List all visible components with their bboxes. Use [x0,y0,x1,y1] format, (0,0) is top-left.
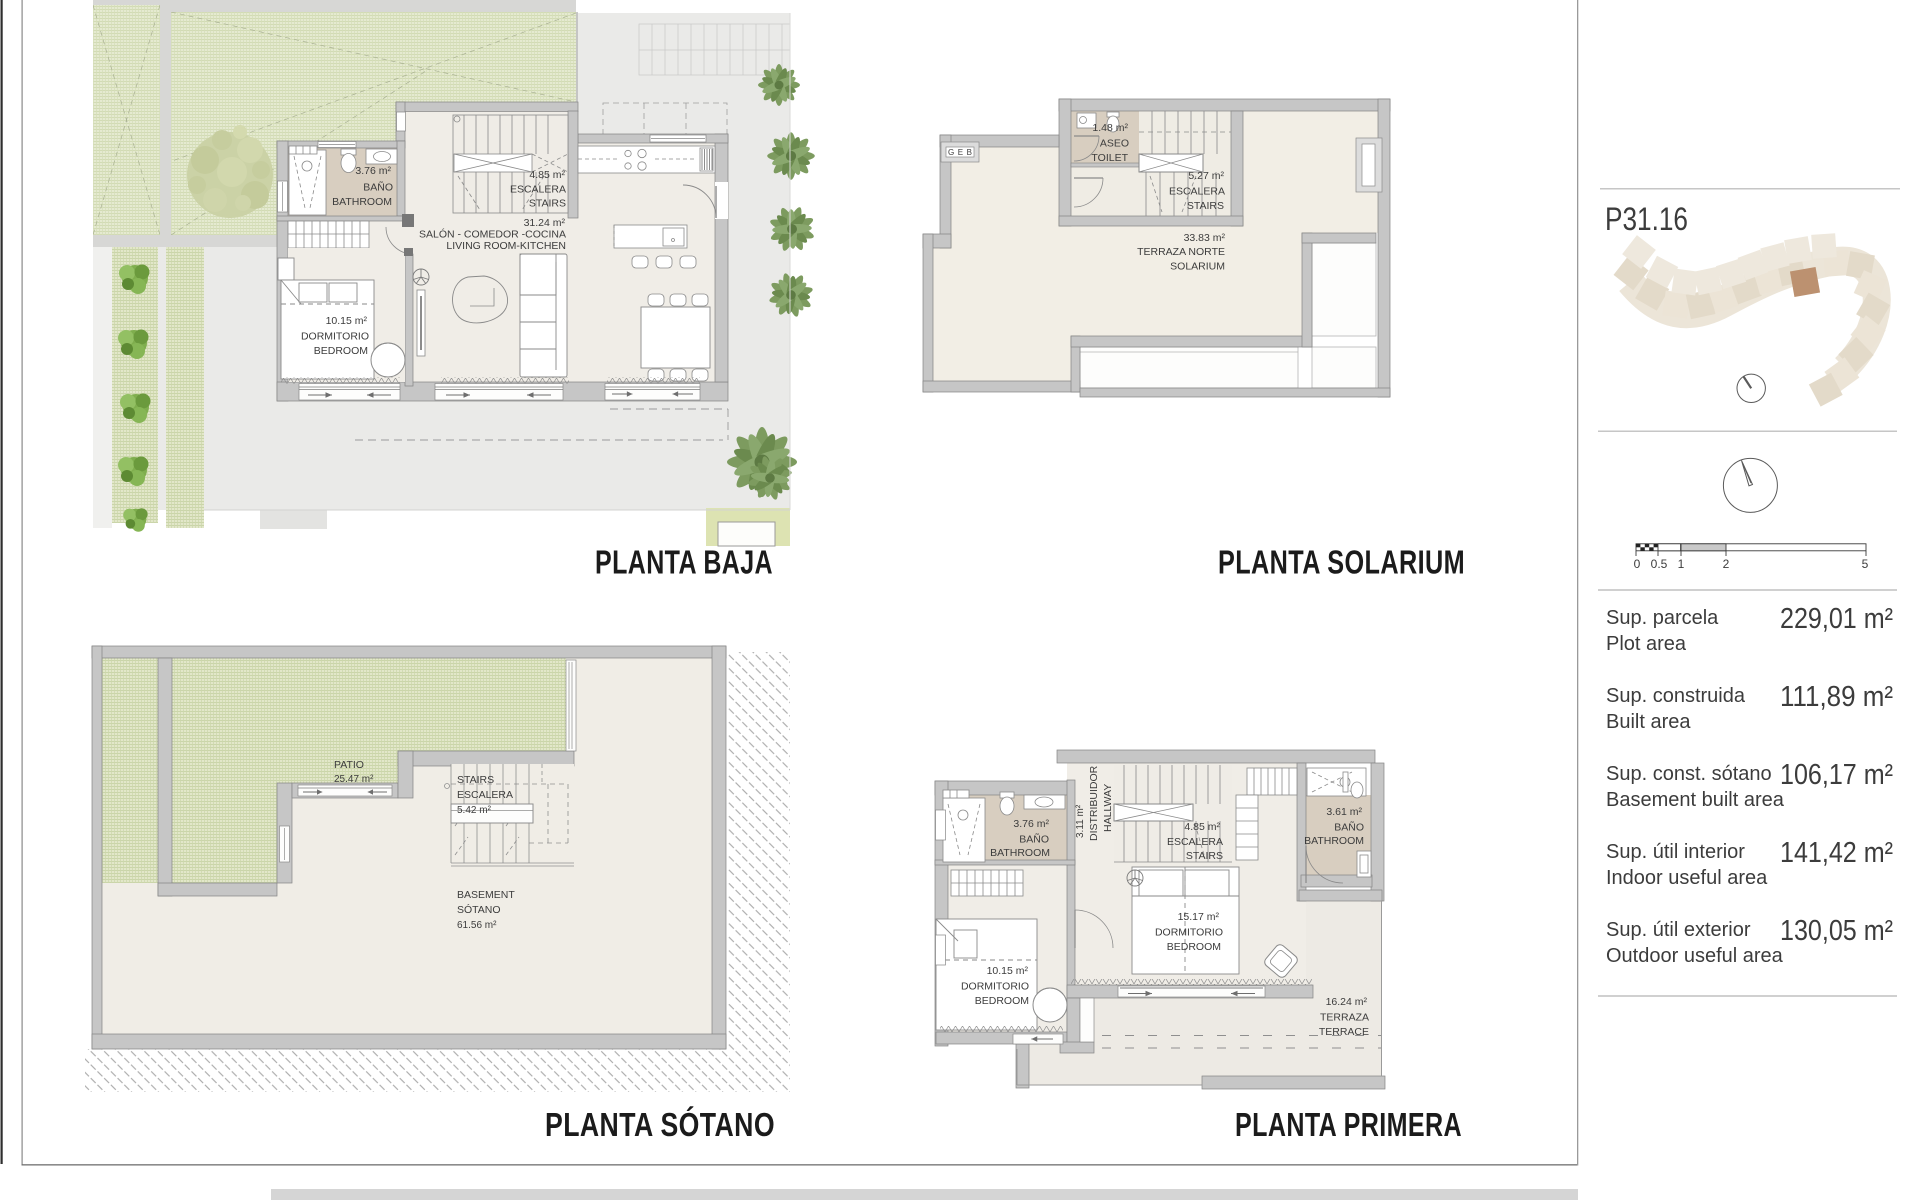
svg-text:DISTRIBUIDOR: DISTRIBUIDOR [1088,765,1100,841]
svg-text:3.76 m²: 3.76 m² [1013,818,1049,830]
svg-text:0.5: 0.5 [1651,557,1668,571]
svg-text:TERRAZA: TERRAZA [1320,1012,1369,1024]
svg-text:4.85 m²: 4.85 m² [1184,821,1220,833]
svg-text:Sup. parcela: Sup. parcela [1606,607,1719,629]
svg-text:Outdoor useful area: Outdoor useful area [1606,945,1784,967]
svg-text:5.27 m²: 5.27 m² [1188,170,1224,182]
svg-text:SÓTANO: SÓTANO [457,903,501,916]
svg-text:Basement built area: Basement built area [1606,789,1785,811]
svg-text:229,01 m²: 229,01 m² [1780,603,1893,635]
svg-text:SALÓN - COMEDOR -COCINA: SALÓN - COMEDOR -COCINA [419,228,566,241]
svg-text:5: 5 [1862,557,1869,571]
svg-text:ASEO: ASEO [1100,138,1129,150]
svg-text:P31.16: P31.16 [1605,201,1688,237]
svg-text:33.83 m²: 33.83 m² [1184,232,1226,244]
svg-text:PLANTA BAJA: PLANTA BAJA [595,544,773,581]
svg-text:PLANTA SOLARIUM: PLANTA SOLARIUM [1218,544,1465,581]
svg-text:DORMITORIO: DORMITORIO [301,331,369,343]
svg-text:DORMITORIO: DORMITORIO [961,981,1029,993]
svg-text:141,42 m²: 141,42 m² [1780,837,1893,869]
svg-text:TOILET: TOILET [1091,152,1128,164]
svg-text:1: 1 [1678,557,1685,571]
svg-text:STAIRS: STAIRS [1187,200,1224,212]
svg-text:SOLARIUM: SOLARIUM [1170,261,1225,273]
svg-text:3.11 m²: 3.11 m² [1075,804,1086,838]
svg-text:15.17 m²: 15.17 m² [1178,911,1220,923]
svg-text:STAIRS: STAIRS [1186,850,1223,862]
svg-text:3.76 m²: 3.76 m² [355,165,391,177]
svg-text:LIVING ROOM-KITCHEN: LIVING ROOM-KITCHEN [446,240,566,252]
svg-text:GEB: GEB [948,148,972,157]
svg-text:4.85 m²: 4.85 m² [529,169,565,181]
svg-text:TERRACE: TERRACE [1319,1026,1369,1038]
svg-text:ESCALERA: ESCALERA [1169,186,1225,198]
svg-text:1.48 m²: 1.48 m² [1092,122,1128,134]
svg-text:HALLWAY: HALLWAY [1102,784,1114,832]
svg-text:0: 0 [1634,557,1641,571]
svg-text:STAIRS: STAIRS [457,774,494,786]
svg-text:31.24 m²: 31.24 m² [524,217,566,229]
svg-text:3.61 m²: 3.61 m² [1326,806,1362,818]
svg-text:2: 2 [1723,557,1730,571]
svg-text:ESCALERA: ESCALERA [510,184,566,196]
svg-text:111,89 m²: 111,89 m² [1780,681,1893,713]
svg-text:10.15 m²: 10.15 m² [326,315,368,327]
svg-text:130,05 m²: 130,05 m² [1780,915,1893,947]
svg-text:BAÑO: BAÑO [1334,821,1364,834]
svg-text:BATHROOM: BATHROOM [332,196,392,208]
svg-text:ESCALERA: ESCALERA [1167,836,1223,848]
svg-text:Indoor useful area: Indoor useful area [1606,867,1768,889]
svg-text:TERRAZA NORTE: TERRAZA NORTE [1137,246,1225,258]
svg-text:106,17 m²: 106,17 m² [1780,759,1893,791]
svg-text:61.56 m²: 61.56 m² [457,920,497,931]
svg-text:Sup. útil interior: Sup. útil interior [1606,841,1745,863]
svg-text:BEDROOM: BEDROOM [314,345,368,357]
svg-text:10.15 m²: 10.15 m² [987,965,1029,977]
svg-text:Sup. construida: Sup. construida [1606,685,1746,707]
svg-text:BEDROOM: BEDROOM [1167,941,1221,953]
svg-text:Sup. const. sótano: Sup. const. sótano [1606,763,1772,785]
svg-text:PATIO: PATIO [334,759,364,771]
svg-text:BEDROOM: BEDROOM [975,995,1029,1007]
svg-text:PLANTA SÓTANO: PLANTA SÓTANO [545,1106,775,1143]
svg-text:BATHROOM: BATHROOM [990,847,1050,859]
svg-text:BASEMENT: BASEMENT [457,889,515,901]
svg-text:BAÑO: BAÑO [1019,833,1049,846]
svg-text:PLANTA PRIMERA: PLANTA PRIMERA [1235,1106,1462,1143]
svg-text:Plot area: Plot area [1606,633,1687,655]
svg-text:BAÑO: BAÑO [363,181,393,194]
svg-text:5.42 m²: 5.42 m² [457,805,492,816]
svg-text:Sup. útil exterior: Sup. útil exterior [1606,919,1751,941]
svg-text:ESCALERA: ESCALERA [457,789,513,801]
svg-text:BATHROOM: BATHROOM [1304,835,1364,847]
svg-text:STAIRS: STAIRS [529,198,566,210]
svg-text:16.24 m²: 16.24 m² [1326,996,1368,1008]
svg-text:DORMITORIO: DORMITORIO [1155,927,1223,939]
svg-text:Built area: Built area [1606,711,1691,733]
